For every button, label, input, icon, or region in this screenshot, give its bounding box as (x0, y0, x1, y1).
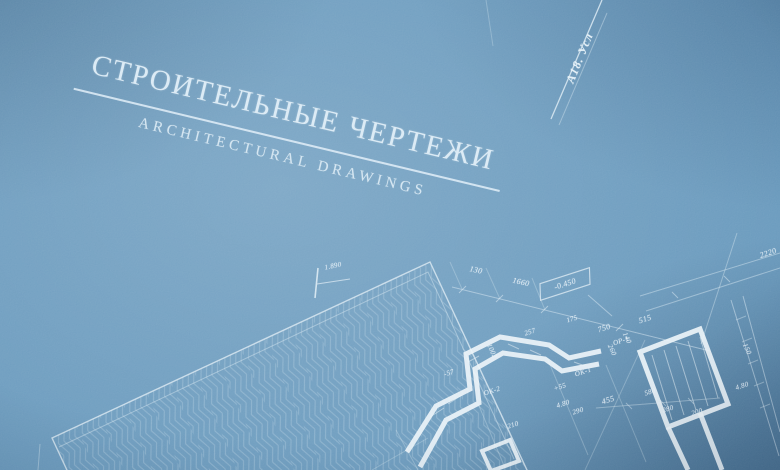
blueprint-photo: СТРОИТЕЛЬНЫЕ ЧЕРТЕЖИ ARCHITECTURAL DRAWI… (0, 0, 780, 470)
